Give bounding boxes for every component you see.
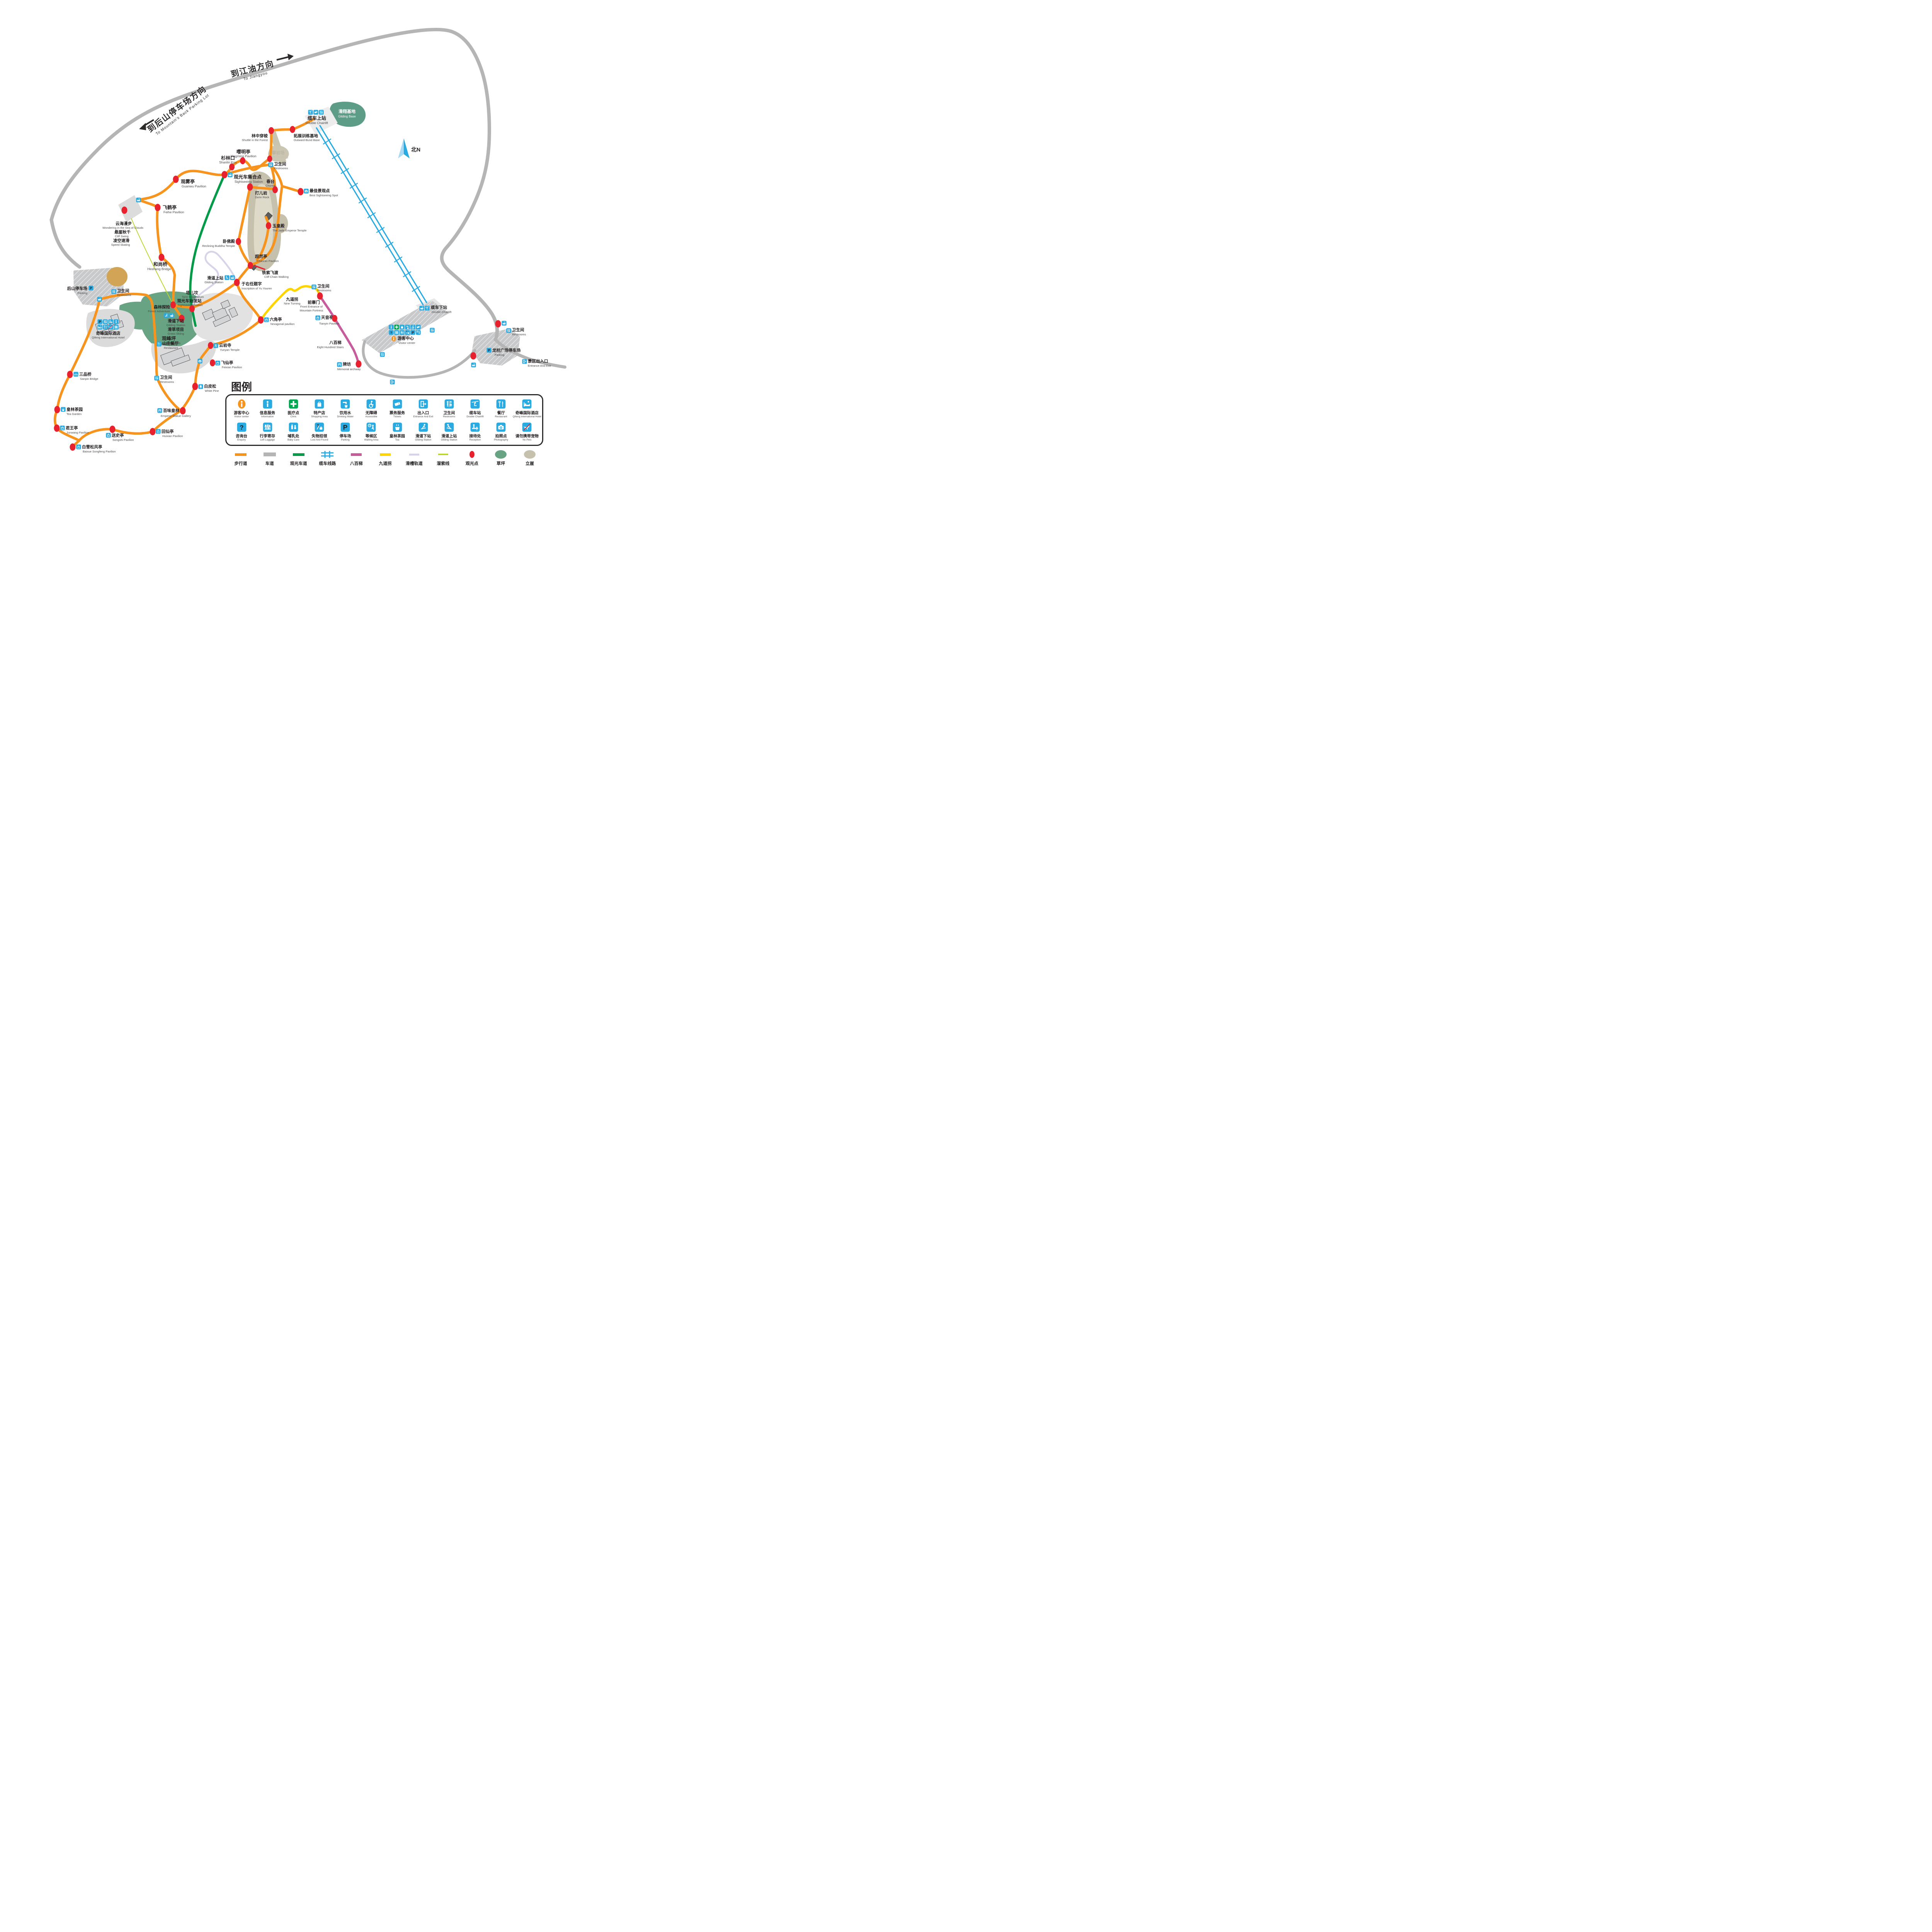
legend-line-chute: 滑槽轨道 <box>401 450 428 466</box>
enquiry-icon <box>237 422 247 432</box>
memorial-dot <box>356 361 362 368</box>
qianzhaimen-dot <box>317 293 323 300</box>
legend-label-zh: 卫生间 <box>443 410 455 415</box>
memorial-label-zh: 牌坊 <box>343 362 351 367</box>
legend-item-luggage: 行李寄存 Left Luggage <box>255 422 280 441</box>
shopping-icon <box>400 325 404 329</box>
pavilion-icon <box>76 444 81 449</box>
jade-label-zh: 玉皇殿 <box>272 223 285 228</box>
tianyin-dot <box>332 315 337 322</box>
camera-icon <box>197 359 202 363</box>
legend-label-en: Enquiry <box>237 439 246 441</box>
cable-car-line <box>316 126 427 305</box>
yu-youren-label-en: Inscription of Yu Youren <box>241 287 272 290</box>
waiting-icon <box>416 330 420 335</box>
legend-label-zh: 哺乳处 <box>287 433 299 439</box>
photo-icon <box>496 422 506 432</box>
shuttle-label-en: Shuttle in the Forest <box>242 138 268 142</box>
emperor-gallery-label-en: Emperor Statue Gallery <box>161 414 191 418</box>
pavilion-icon <box>106 433 111 437</box>
legend-item-water: 饮用水 Drinking Water <box>333 399 358 418</box>
qianzhaimen-label-zh: 前寨门 <box>308 300 320 305</box>
houshan-parking-label-zh: 后山停车场 <box>67 286 88 291</box>
yunyan-dot <box>208 342 213 349</box>
emperor-gallery-dot <box>180 407 186 415</box>
legend-line-busroad: 观光车道 <box>285 450 312 466</box>
legend-item-clinic: 医疗点 Clinic <box>281 399 306 418</box>
meeting-label-zh: 观光车集合点 <box>234 174 262 180</box>
restroom-icon <box>380 352 384 357</box>
restroom-n-label-zh: 卫生间 <box>274 162 286 167</box>
entrance-exit-icon <box>522 359 527 364</box>
jade-dot <box>266 222 271 229</box>
visitor-center-label-en: Visitor center <box>398 341 415 345</box>
legend-label-en: Visitor center <box>234 415 249 418</box>
restroom-icon <box>311 284 316 289</box>
clinic-icon <box>289 399 298 409</box>
legend-row-services-2: 咨询台 Enquiry 行李寄存 Left Luggage 哺乳处 Baby C… <box>229 422 540 441</box>
parking-icon <box>97 319 102 324</box>
legend-label-en: Accessible <box>365 415 377 418</box>
legend-label-zh: 滑道下站 <box>415 433 431 439</box>
visitor-center-label-zh: 游客中心 <box>398 336 414 341</box>
skidown-icon <box>418 422 428 432</box>
pine-icon <box>198 384 203 389</box>
legend-label-en: Information <box>261 415 274 418</box>
shanlinkou-label-zh: 杉林口 <box>221 155 235 161</box>
legend-item-wait: 等候区 Waiting Area <box>359 422 384 441</box>
entrance-label-zh: 景区出入口 <box>527 359 548 364</box>
yunyan-label-zh: 云岩寺 <box>219 343 231 348</box>
chairlift-icon <box>425 306 429 310</box>
jade-label-en: The Jade Emperor Temple <box>272 229 306 232</box>
legend-item-photo: 拍照点 Photography <box>488 422 514 441</box>
restroom-e-label-en: Restrooms <box>512 333 526 336</box>
guanwu-label-en: Guanwu Pavilion <box>182 184 206 188</box>
lawn-label-zh: 观峰坪 <box>162 335 176 341</box>
hexagonal-label-en: hexagonal pavilion <box>270 322 294 326</box>
temple-icon <box>213 343 218 348</box>
legend-line-walk: 步行道 <box>227 450 254 466</box>
best-spot-label-zh: 最佳景观点 <box>310 188 330 193</box>
legend-label-zh: 信息服务 <box>260 410 275 415</box>
north-compass-icon: 北N <box>398 138 420 158</box>
legend-label-en: Photography <box>494 439 508 441</box>
memorial-label-en: Memorial archway <box>337 367 361 371</box>
legend-label-zh: 等候区 <box>366 433 377 439</box>
legend-label-zh: 滑道上站 <box>441 433 457 439</box>
feixian-label-zh: 飞仙亭 <box>221 360 233 365</box>
information-icon <box>389 325 393 329</box>
pavilion-icon <box>264 317 269 322</box>
restroom-e-label-zh: 卫生间 <box>512 327 524 332</box>
huixian-label-en: Huixian Pavilion <box>162 434 183 438</box>
rest-icon <box>496 399 506 409</box>
legend-line-nineturn: 九道拐 <box>372 450 399 466</box>
tea-icon <box>393 422 402 432</box>
legend-line-road: 车道 <box>256 450 283 466</box>
junwang-label-zh: 君王亭 <box>66 425 78 430</box>
legend-label-zh: 出入口 <box>417 410 429 415</box>
walk-west-loop <box>55 299 100 440</box>
wofodian-label-en: Reclining Buddha Temple <box>202 244 235 248</box>
legend-line-zipline: 溜索线 <box>430 450 457 466</box>
access-icon <box>366 399 376 409</box>
legend-label-en: No Pets <box>522 439 531 441</box>
taer-label-zh: 塔儿坟 <box>186 290 198 295</box>
reception-icon <box>470 422 480 432</box>
start-station-dot <box>189 305 195 312</box>
legend-item-park: 停车场 Parking <box>333 422 358 441</box>
yingming-dot <box>240 157 245 164</box>
wofodian-label-zh: 卧佛殿 <box>223 239 235 244</box>
legend-label-zh: 行李寄存 <box>260 433 275 439</box>
cable-bottom-label-zh: 缆车下站 <box>431 305 447 310</box>
compass-label: 北N <box>411 146 420 153</box>
restroom-icon <box>154 376 159 380</box>
restroom-nt-label-zh: 卫生间 <box>317 284 330 289</box>
shanlinkou-label-en: Shanlin Kou <box>219 160 237 164</box>
speed-skating-label-en: Speed Skating <box>111 243 130 247</box>
grass-ski-label-en: Grass Skiing <box>168 332 184 335</box>
luggage-icon <box>114 325 118 329</box>
legend-label-zh: 饮用水 <box>340 410 351 415</box>
chairlift-icon <box>308 110 313 114</box>
glide-top-dot <box>234 279 240 286</box>
nopets-icon <box>522 422 532 432</box>
daer-label-en: Da'er Rock <box>255 196 269 199</box>
legend-label-zh: 缆车站 <box>469 410 481 415</box>
legend-item-reception: 接待处 Reception <box>463 422 488 441</box>
start-station-label-en: Sightseeing Station <box>178 303 203 307</box>
songshi-label-zh: 送史亭 <box>111 433 124 438</box>
houshan-parking-label-en: Parking <box>78 291 87 295</box>
pavilion-icon <box>156 429 160 434</box>
longzhu-label-zh: 龙柱广场停车场 <box>492 348 521 353</box>
legend-item-skiup: 滑道上站 Gliding Station <box>436 422 462 441</box>
speed-skating-label-zh: 凌空速滑 <box>113 238 129 243</box>
legend-label-en: Left Luggage <box>260 439 275 441</box>
no-pets-icon <box>108 325 113 329</box>
direction-back-parking: 到后山停车场方向 To Mountain's Back Parking Lot <box>146 84 211 138</box>
legend-box: 游客中心 Visitor center 信息服务 Information 医疗点… <box>225 394 543 446</box>
meeting-dot <box>222 171 228 179</box>
legend-label-en: Shopping Area <box>311 415 328 418</box>
park-icon <box>340 422 350 432</box>
skiup-icon <box>444 422 454 432</box>
restroom-icon <box>111 289 116 294</box>
shop-icon <box>315 399 324 409</box>
scenic-area-map: ? ? P <box>0 0 606 487</box>
legend-row-services-1: 游客中心 Visitor center 信息服务 Information 医疗点… <box>229 399 540 418</box>
pavilion-icon <box>60 425 65 430</box>
longzhu-dot-n <box>495 320 501 328</box>
legend-label-en: Tickets <box>393 415 401 418</box>
tianyin-label-en: Tianyin Pavilion <box>319 322 339 325</box>
legend-label-en: Restaurant <box>495 415 507 418</box>
shanlinkou-dot <box>229 163 235 170</box>
chaoran-label-en: Chaoran Pavilion <box>257 259 279 263</box>
archway-icon <box>337 362 342 367</box>
legend-item-ticket: 票务服务 Tickets <box>384 399 410 418</box>
pavilion-icon <box>215 361 220 365</box>
shuttle-dot <box>269 127 274 134</box>
cable-top-label-zh: 缆车上站 <box>308 115 326 121</box>
songshi-label-en: Songshi Pavilion <box>112 438 134 442</box>
sea-clouds-dot <box>122 207 128 214</box>
legend-line-label: 缆车线路 <box>319 460 336 466</box>
chaoran-dot <box>248 262 253 269</box>
jiangyou-arrow-icon <box>277 54 294 60</box>
tickets-icon <box>416 325 420 329</box>
cable-top-label-en: Double Chairlift <box>306 121 328 125</box>
visitor-center-icon <box>392 336 396 341</box>
legend-line-label: 滑槽轨道 <box>406 460 423 466</box>
forest-adv-label-zh: 森林探险 <box>153 304 170 310</box>
legend-label-en: Tea <box>395 439 399 441</box>
legend-label-zh: 皇林茶园 <box>389 433 405 439</box>
sanpin-dot <box>67 371 73 378</box>
exit-icon <box>418 399 428 409</box>
legend-item-exit: 出入口 Entrance And Exit <box>410 399 436 418</box>
legend-item-enquiry: 咨询台 Enquiry <box>229 422 254 441</box>
glide-top-label-zh: 滑道上站 <box>207 276 223 281</box>
cable-swatch <box>320 450 334 459</box>
restaurant-icon <box>156 342 161 346</box>
nine-turning-label-en: Nine Turning <box>284 302 301 305</box>
legend-label-zh: 餐厅 <box>497 410 505 415</box>
sanpin-label-en: Sanpin Bridge <box>80 377 98 381</box>
pavilion-icon <box>315 315 320 320</box>
heshang-label-zh: 和尚桥 <box>153 261 168 267</box>
gallery-icon <box>157 408 162 413</box>
legend-line-label: 步行道 <box>235 460 247 466</box>
stairs-swatch <box>351 450 362 459</box>
legend-item-skidown: 滑道下站 Gliding Station <box>410 422 436 441</box>
information-icon <box>114 319 118 324</box>
glide-up-icon <box>224 275 229 280</box>
busroad-swatch <box>293 450 304 459</box>
legend-label-zh: 无障碍 <box>366 410 377 415</box>
restroom-parking-label-en: Restrooms <box>117 293 131 297</box>
legend-label-zh: 失物招领 <box>312 433 327 439</box>
heshang-dot <box>159 254 165 261</box>
eight-hundred-label-en: Eight Hundred Stairs <box>317 345 344 349</box>
chaoran-label-zh: 超然亭 <box>255 254 267 259</box>
restaurant-label-zh: 山庄餐厅 <box>162 341 179 346</box>
lost-found-icon <box>405 330 410 335</box>
restroom-icon <box>506 328 511 333</box>
legend-label-en: Gliding Station <box>441 439 457 441</box>
hotel-icon <box>522 399 532 409</box>
cliff-swatch <box>524 450 536 459</box>
legend-label-zh: 游客中心 <box>234 410 249 415</box>
heshang-label-en: Heshang Bridge <box>148 267 171 271</box>
legend-label-zh: 拍照点 <box>495 433 507 439</box>
sightseeing-bus-icon <box>97 297 102 301</box>
forest-adv-dot <box>170 301 176 308</box>
legend-label-en: Parking <box>341 439 350 441</box>
lost-icon <box>315 422 324 432</box>
legend-item-nopets: 请勿携带宠物 No Pets <box>514 422 540 441</box>
yu-youren-label-zh: 于右任题字 <box>241 281 262 286</box>
baixue-dot <box>70 444 76 451</box>
sightseeing-bus-icon <box>230 275 235 280</box>
legend-line-cable: 缆车线路 <box>314 450 341 466</box>
hexagonal-dot <box>258 316 264 324</box>
parking-icon <box>486 348 491 352</box>
best-spot-dot <box>298 188 304 196</box>
qianzhaimen-label-en: Front Entrance of <box>300 305 323 308</box>
drinking-water-icon <box>405 325 410 329</box>
sightseeing-bus-icon <box>502 321 506 325</box>
sanpin-label-zh: 三品桥 <box>79 372 92 377</box>
restroom-icon <box>444 399 454 409</box>
taer-label-en: Ta'er Mausoleum <box>182 295 204 299</box>
hotel-label-en: Qifeng International Hotel <box>92 336 124 339</box>
sightseeing-bus-icon <box>136 197 141 202</box>
feixian-dot <box>210 359 215 366</box>
enquiry-icon <box>389 330 393 335</box>
sea-clouds-label-en: Wondering in the Sea of Clouds <box>102 226 143 230</box>
parking-icon <box>410 330 415 335</box>
reception-icon <box>108 319 113 324</box>
legend-label-en: Restrooms <box>443 415 455 418</box>
legend-label-en: Double Chairlift <box>466 415 483 418</box>
luggage-icon <box>394 330 399 335</box>
walk-swatch <box>235 450 247 459</box>
legend-item-hotel: 奇峰国际酒店 Qifeng International Hotel <box>514 399 540 418</box>
wofodian-dot <box>236 238 241 245</box>
grass-ski-label-zh: 滑草项目 <box>168 327 184 332</box>
restroom-parking-label-zh: 卫生间 <box>117 288 129 293</box>
huixian-dot <box>150 428 156 435</box>
legend-label-en: Waiting Area <box>364 439 379 441</box>
start-station-label-zh: 观光车始发站 <box>177 298 202 303</box>
cliff-swing-label-en: Cliff Swing <box>115 235 128 238</box>
sightseeing-bus-icon <box>471 362 476 367</box>
restroom-icon <box>268 162 273 167</box>
restroom-icon <box>319 110 323 114</box>
khaki-knoll <box>107 267 128 286</box>
baixue-label-zh: 白雪松风亭 <box>82 444 102 449</box>
lawn-swatch <box>495 450 507 459</box>
emperor-gallery-label-zh: 百味皇林 <box>163 408 179 413</box>
legend-label-en: Qifeng International Hotel <box>513 415 541 418</box>
parking-icon <box>88 286 93 290</box>
glide-bottom-label-en: Gliding Station <box>167 323 185 327</box>
feixian-label-en: Feixian Pavilion <box>222 366 242 369</box>
restaurant-icon <box>103 325 107 329</box>
legend-label-zh: 接待处 <box>469 433 481 439</box>
road-swatch <box>264 450 276 459</box>
legend-label-en: Gliding Station <box>415 439 431 441</box>
sightseeing-bus-icon <box>419 306 424 310</box>
yunyan-label-en: Yunyan Temple <box>220 348 240 352</box>
lift-icon <box>470 399 480 409</box>
legend-label-zh: 请勿携带宠物 <box>515 433 539 439</box>
legend-label-en: Clinic <box>290 415 296 418</box>
forest-adv-label-en: Forest Adventure <box>148 310 170 313</box>
legend-line-stairs: 八百梯 <box>343 450 370 466</box>
sightseeing-bus-icon <box>169 313 174 318</box>
legend-label-zh: 票务服务 <box>389 410 405 415</box>
legend-label-en: Drinking Water <box>337 415 354 418</box>
clinic-icon <box>394 325 399 329</box>
road-left-branch <box>51 220 80 267</box>
glide-top-label-en: Gliding Station <box>204 281 223 284</box>
junwang-label-en: Junwang Pavilion <box>66 431 89 434</box>
restroom-sw-label-en: Restrooms <box>160 380 174 384</box>
longzhu-dot-w <box>471 352 476 360</box>
info-icon <box>263 399 272 409</box>
bridge-icon <box>73 372 78 376</box>
white-pine-label-zh: 白皮松 <box>204 384 216 389</box>
tea-garden-label-en: Tea Garden <box>66 412 82 416</box>
longzhu-label-en: Parking <box>495 353 504 357</box>
entrance-label-en: Entrance And Exit <box>528 364 551 367</box>
cable-bottom-label-en: Double Chairlift <box>432 310 452 314</box>
rock-climbing-label-zh: 攀岩场 <box>272 150 285 155</box>
eight-hundred-stairs-path <box>320 296 359 364</box>
legend-line-label: 草坪 <box>497 460 505 466</box>
guanwu-label-zh: 观雾亭 <box>181 179 195 184</box>
legend-label-en: Reception <box>469 439 481 441</box>
outward-label-zh: 拓展训练基地 <box>294 133 318 138</box>
legend-item-lost: 失物招领 Lost And Found <box>307 422 332 441</box>
restroom-sw-label-zh: 卫生间 <box>160 375 172 380</box>
zipline-swatch <box>438 450 448 459</box>
walk-heshang <box>138 200 175 305</box>
songshi-dot <box>110 426 116 433</box>
white-pine-dot <box>192 383 198 390</box>
feihe-dot <box>155 204 161 211</box>
wait-icon <box>366 422 376 432</box>
shuttle-label-zh: 林中穿梭 <box>252 133 268 138</box>
legend-line-label: 九道拐 <box>379 460 391 466</box>
hexagonal-label-zh: 六角亭 <box>270 317 282 322</box>
legend-line-label: 立崖 <box>526 460 534 466</box>
legend-item-visitor: 游客中心 Visitor center <box>229 399 254 418</box>
qianzhaimen-label-en2: Mountain Fortress <box>300 309 323 312</box>
legend-label-zh: 医疗点 <box>287 410 299 415</box>
camera-icon <box>304 189 308 193</box>
legend-item-tea: 皇林茶园 Tea <box>384 422 410 441</box>
outward-label-en: Outward-Bund Base <box>294 138 320 142</box>
glide-down-icon <box>164 313 168 318</box>
baby-icon <box>289 422 298 432</box>
tea-garden-dot <box>54 406 60 413</box>
legend-line-label: 溜索线 <box>437 460 449 466</box>
legend-line-spot: 观光点 <box>458 450 485 466</box>
legend-label-en: Lost And Found <box>311 439 328 441</box>
daer-label-zh: 打儿岩 <box>255 190 267 196</box>
hotel-icon <box>97 325 102 329</box>
legend-item-rest: 餐厅 Restaurant <box>488 399 514 418</box>
sea-clouds-label-zh: 云海漫步 <box>116 221 132 226</box>
legend-item-lift: 缆车站 Double Chairlift <box>463 399 488 418</box>
baixue-label-en: Baixue Songfeng Pavilion <box>83 450 116 453</box>
legend-line-cliff: 立崖 <box>516 450 543 466</box>
hotel-label-zh: 奇峰国际酒店 <box>96 331 121 336</box>
legend-label-zh: 特产店 <box>314 410 325 415</box>
restroom-icon <box>103 319 107 324</box>
legend-line-label: 观光车道 <box>290 460 307 466</box>
legend-item-info: 信息服务 Information <box>255 399 280 418</box>
luggage-icon <box>263 422 272 432</box>
legend-line-label: 车道 <box>265 460 274 466</box>
legend-item-restroom: 卫生间 Restrooms <box>436 399 462 418</box>
